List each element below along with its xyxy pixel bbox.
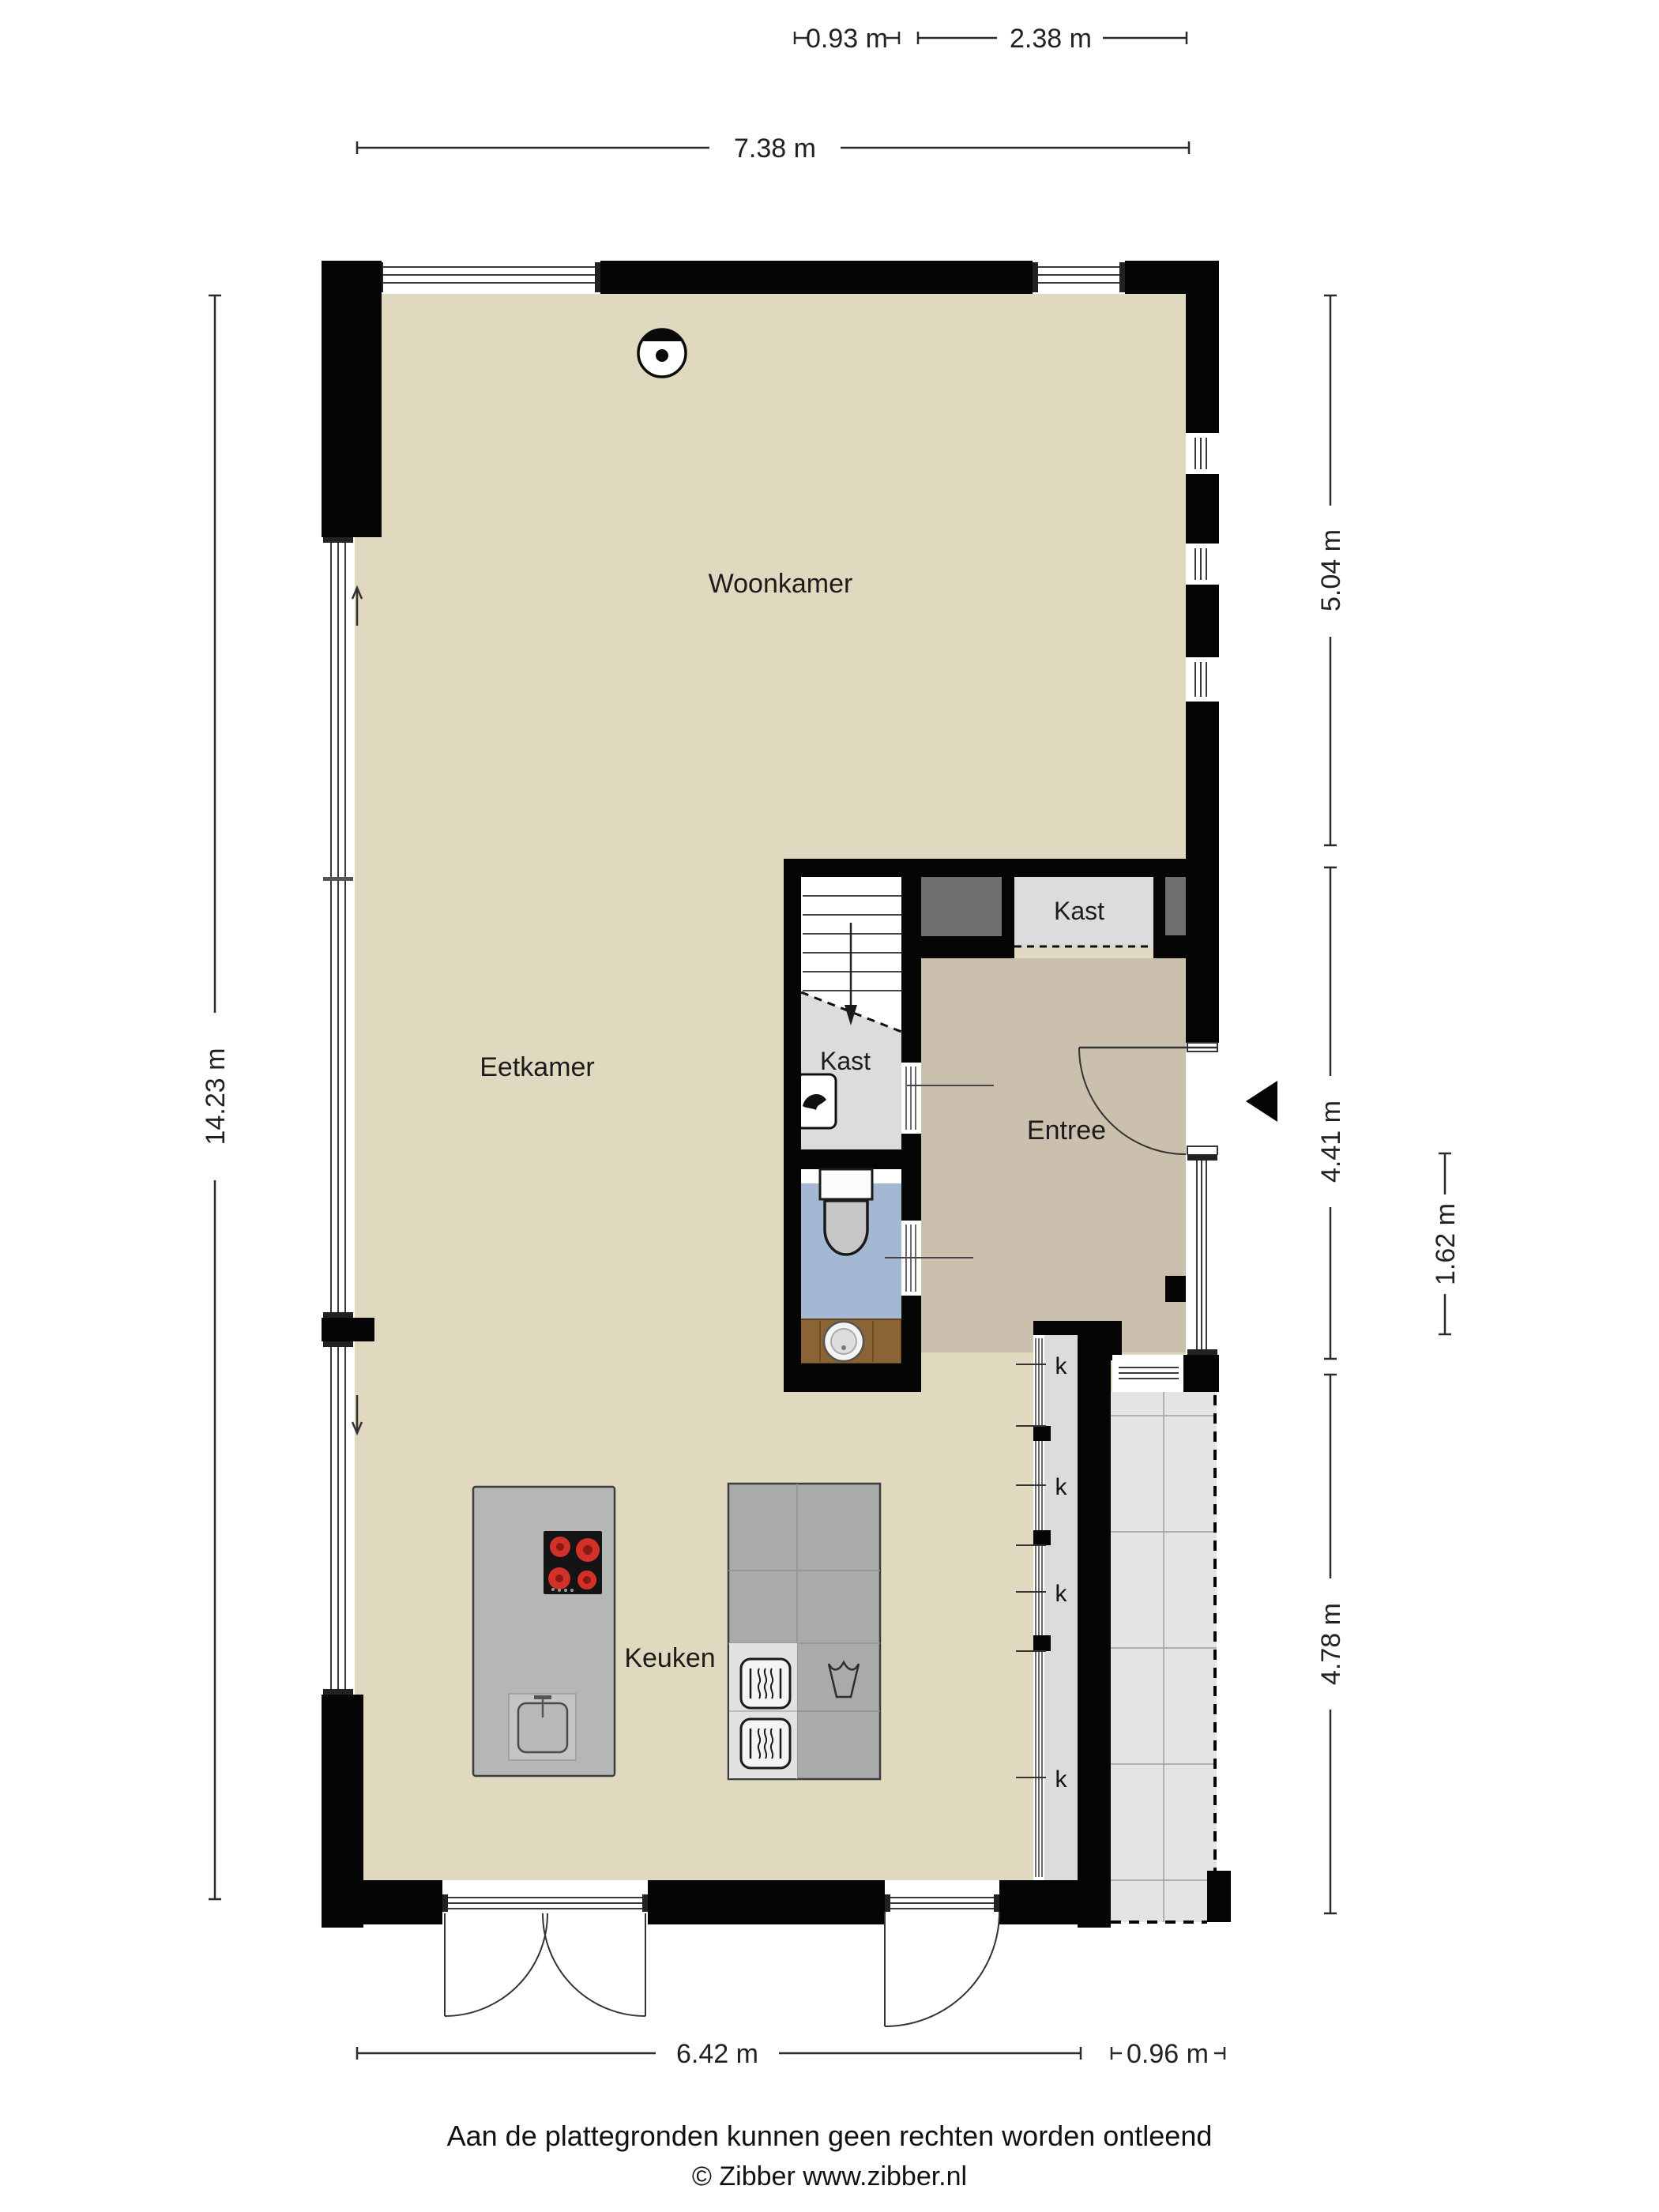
closet-mark-1: k xyxy=(1055,1353,1068,1379)
dim-top-right: 2.38 m xyxy=(1010,24,1092,54)
toilet-icon xyxy=(820,1169,872,1255)
kitchen-counter xyxy=(728,1484,880,1779)
garden-double-door xyxy=(442,1893,648,2016)
dim-bottom-main: 6.42 m xyxy=(676,2039,758,2069)
closet-mark-4: k xyxy=(1055,1766,1068,1793)
shaft-left xyxy=(921,877,1002,936)
footer-disclaimer: Aan de plattegronden kunnen geen rechten… xyxy=(447,2120,1213,2152)
island-sink xyxy=(509,1694,576,1760)
window-top-left xyxy=(378,261,600,294)
room-label-entree: Entree xyxy=(1027,1115,1106,1145)
window-right-small-1 xyxy=(1186,433,1219,474)
oven-icon-2 xyxy=(741,1719,790,1768)
dim-top-left: 0.93 m xyxy=(806,24,888,54)
dim-right-middle: 4.41 m xyxy=(1316,1100,1346,1183)
entry-floor xyxy=(921,958,1186,1352)
room-label-woonkamer: Woonkamer xyxy=(709,569,853,599)
dim-right-upper: 5.04 m xyxy=(1316,529,1346,611)
vanity xyxy=(798,1319,901,1364)
dim-right-lower: 4.78 m xyxy=(1316,1603,1346,1685)
closet-mark-2: k xyxy=(1055,1474,1068,1500)
kitchen-island xyxy=(473,1487,615,1776)
room-label-keuken: Keuken xyxy=(624,1643,715,1673)
window-left-upper xyxy=(322,537,355,1318)
window-left-lower xyxy=(322,1341,355,1695)
room-label-kast-hal: Kast xyxy=(1054,897,1104,925)
footer-copyright: © Zibber www.zibber.nl xyxy=(692,2161,967,2191)
closet-strip-windows xyxy=(1033,1335,1044,1880)
dim-bottom-extension: 0.96 m xyxy=(1127,2039,1209,2069)
room-label-eetkamer: Eetkamer xyxy=(480,1052,595,1082)
window-top-right xyxy=(1033,261,1125,294)
window-right-small-2 xyxy=(1186,544,1219,585)
window-right-lower xyxy=(1186,1155,1219,1355)
floorplan-page: Woonkamer Eetkamer Keuken Entree Kast Ka… xyxy=(0,0,1659,2212)
ceiling-light-icon xyxy=(638,329,686,377)
outside-tiled-area xyxy=(1111,1355,1231,1922)
kitchen-door xyxy=(885,1893,999,2026)
closet-mark-3: k xyxy=(1055,1581,1068,1607)
dim-left-total: 14.23 m xyxy=(201,1048,231,1145)
room-label-kast-trap: Kast xyxy=(820,1047,871,1075)
window-right-small-3 xyxy=(1186,657,1219,702)
oven-icon xyxy=(741,1659,790,1708)
dim-right-inner: 1.62 m xyxy=(1431,1203,1461,1285)
entrance-arrow-icon xyxy=(1246,1081,1277,1122)
cooktop-icon xyxy=(544,1531,602,1594)
dim-top-total: 7.38 m xyxy=(734,134,816,164)
shaft-right xyxy=(1165,877,1186,935)
